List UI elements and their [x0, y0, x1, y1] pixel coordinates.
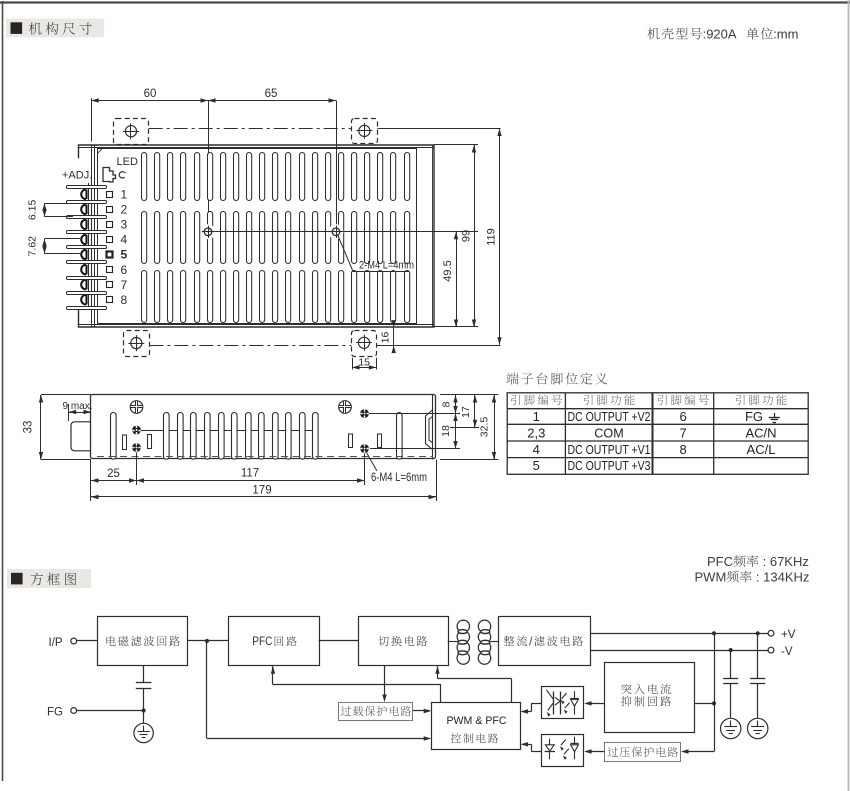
svg-text:49.5: 49.5 — [442, 260, 454, 281]
svg-text:7.62: 7.62 — [27, 236, 39, 257]
svg-text:AC/L: AC/L — [747, 442, 776, 457]
svg-text:8: 8 — [121, 293, 128, 307]
svg-text:I/P: I/P — [49, 637, 63, 649]
svg-text:FG: FG — [47, 707, 63, 719]
svg-text:119: 119 — [486, 228, 498, 246]
svg-text:25: 25 — [107, 468, 120, 480]
svg-text:5: 5 — [121, 248, 128, 262]
svg-text:DC OUTPUT +V2: DC OUTPUT +V2 — [568, 410, 651, 424]
svg-text:7: 7 — [121, 278, 128, 292]
svg-text:FG: FG — [745, 409, 763, 424]
svg-text:16: 16 — [380, 332, 392, 344]
svg-text:2,3: 2,3 — [527, 425, 545, 440]
svg-text::mm: :mm — [773, 27, 798, 42]
svg-text:2: 2 — [121, 203, 128, 217]
svg-text:5: 5 — [533, 458, 540, 473]
svg-text:2-M4 L=4mm: 2-M4 L=4mm — [359, 260, 414, 272]
svg-text:PWM: PWM — [695, 570, 727, 585]
svg-text:: 67KHz: : 67KHz — [759, 554, 809, 569]
svg-text:PFC: PFC — [252, 634, 272, 648]
svg-text:+V: +V — [781, 629, 796, 641]
svg-text:33: 33 — [23, 421, 35, 434]
svg-text:4: 4 — [121, 233, 128, 247]
svg-text:60: 60 — [144, 88, 157, 100]
svg-text:PWM & PFC: PWM & PFC — [446, 715, 506, 727]
svg-text:6-M4 L=6mm: 6-M4 L=6mm — [371, 472, 427, 484]
svg-text:15: 15 — [358, 357, 370, 369]
svg-text:1: 1 — [533, 409, 540, 424]
svg-text:COM: COM — [594, 426, 623, 440]
svg-text:179: 179 — [252, 485, 271, 497]
svg-text:LED: LED — [117, 156, 138, 168]
svg-text:7: 7 — [679, 425, 686, 440]
svg-text:6: 6 — [679, 409, 686, 424]
svg-text::920A: :920A — [703, 27, 737, 42]
svg-text:18: 18 — [440, 425, 452, 437]
svg-text:4: 4 — [533, 442, 540, 457]
svg-text:8: 8 — [441, 401, 453, 407]
svg-text:+ADJ.: +ADJ. — [62, 170, 92, 182]
svg-text:-V: -V — [781, 646, 793, 658]
svg-text:DC OUTPUT +V1: DC OUTPUT +V1 — [568, 443, 651, 457]
svg-text:117: 117 — [241, 468, 259, 480]
svg-text:DC OUTPUT +V3: DC OUTPUT +V3 — [568, 459, 651, 473]
svg-text:: 134KHz: : 134KHz — [752, 570, 809, 585]
svg-text:9 max.: 9 max. — [63, 401, 93, 412]
svg-text:PFC: PFC — [707, 554, 733, 569]
svg-text:6.15: 6.15 — [27, 200, 39, 221]
svg-text:1: 1 — [121, 188, 128, 202]
svg-text:AC/N: AC/N — [745, 425, 776, 440]
svg-text:17: 17 — [460, 406, 472, 418]
svg-text:6: 6 — [121, 263, 128, 277]
svg-text:99: 99 — [461, 230, 473, 242]
svg-text:8: 8 — [679, 442, 686, 457]
svg-text:3: 3 — [121, 218, 128, 232]
svg-text:32.5: 32.5 — [479, 417, 491, 438]
svg-text:65: 65 — [265, 88, 278, 100]
